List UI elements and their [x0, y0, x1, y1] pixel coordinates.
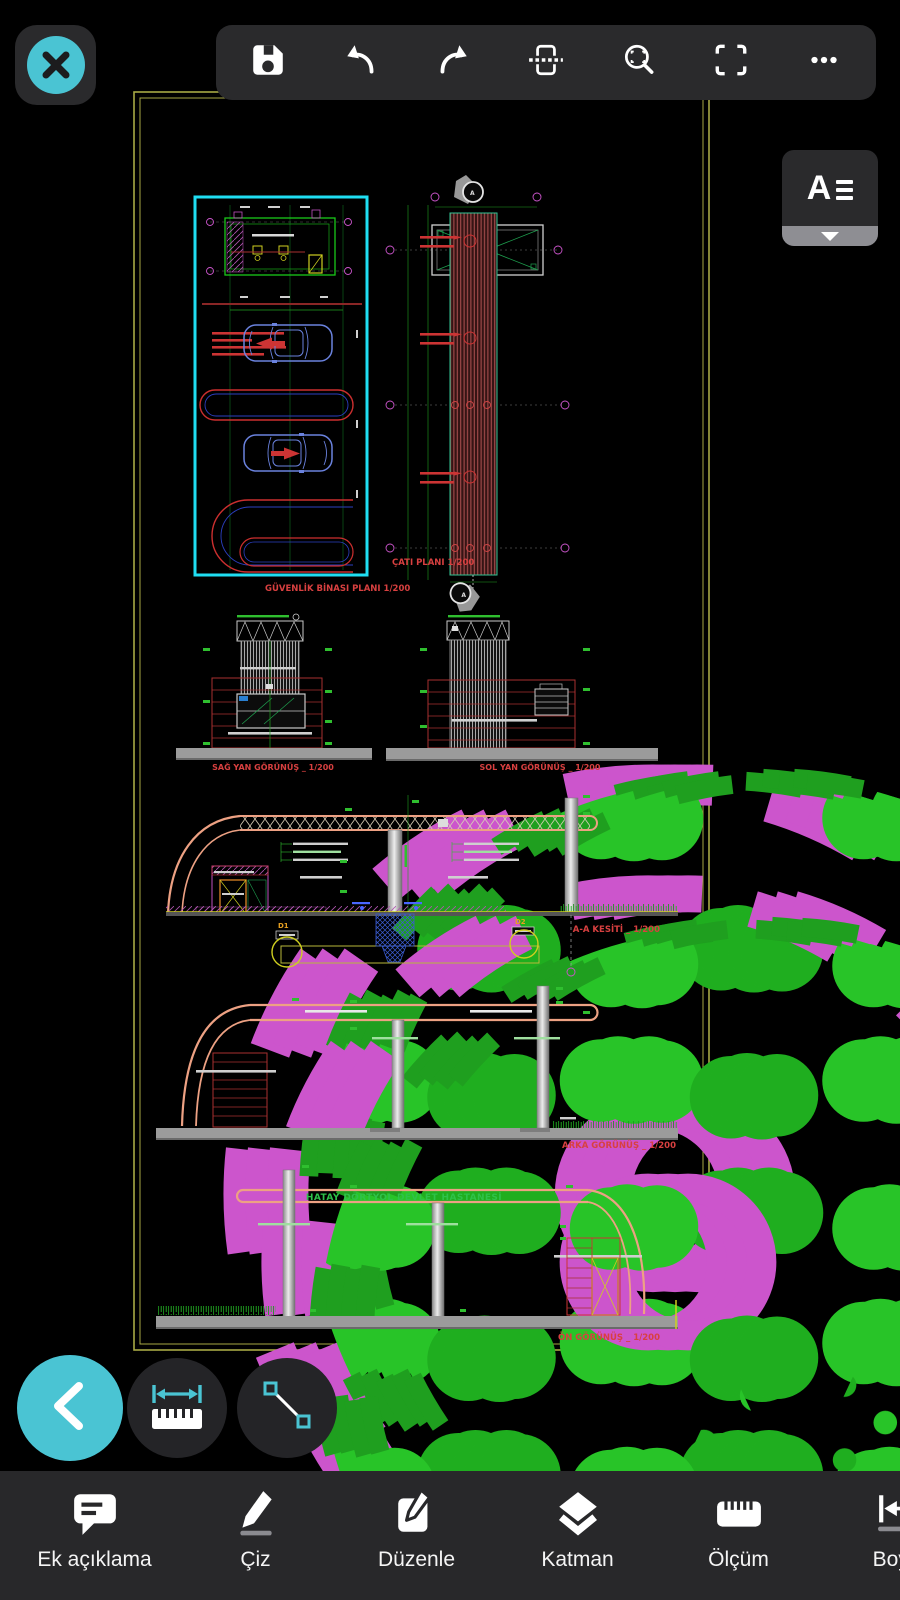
undo-button[interactable]: [329, 31, 393, 95]
security-plan-title: GÜVENLİK BİNASI PLANI 1/200: [265, 583, 410, 594]
section-aa-title: A-A KESİTİ _ 1/200: [573, 924, 660, 935]
text-style-icon: A: [782, 150, 878, 226]
measure-ruler-icon: [146, 1375, 208, 1442]
hospital-sign-text: HATAY DÖRTYOL DEVLET HASTANESİ: [306, 1192, 502, 1203]
back-chevron-icon: [17, 1353, 123, 1464]
back-button[interactable]: [17, 1355, 123, 1461]
right-side-elevation: SAĞ YAN GÖRÜNÜŞ _ 1/200: [176, 614, 372, 772]
left-side-title: SOL YAN GÖRÜNÜŞ _ 1/200: [480, 762, 601, 772]
letter-a: A: [807, 171, 832, 205]
layers-icon: [554, 1487, 602, 1539]
close-icon: [27, 36, 85, 94]
tab-label: Ek açıklama: [37, 1548, 151, 1572]
fullscreen-icon: [712, 41, 750, 84]
dimension-icon: [876, 1487, 900, 1539]
zoom-extents-icon: [620, 41, 658, 84]
svg-text:A: A: [470, 190, 475, 197]
trim-icon: [527, 41, 565, 84]
section-marker-bottom: A: [444, 578, 483, 617]
more-icon: [805, 41, 843, 84]
text-style-button[interactable]: A: [782, 150, 878, 246]
ruler-icon: [715, 1487, 763, 1539]
svg-text:D2: D2: [515, 918, 526, 926]
redo-button[interactable]: [421, 31, 485, 95]
tab-label: Ölçüm: [708, 1548, 769, 1572]
svg-text:D1: D1: [278, 922, 289, 930]
rear-view-title: ARKA GÖRÜNÜŞ _ 1/200: [562, 1140, 676, 1151]
roof-plan-view: A A ÇATI PLANI 1/200: [386, 175, 569, 617]
tab-edit[interactable]: Düzenle: [336, 1471, 497, 1572]
tab-label: Düzenle: [378, 1548, 455, 1572]
more-button[interactable]: [792, 31, 856, 95]
edit-icon: [393, 1487, 441, 1539]
tab-annotation[interactable]: Ek açıklama: [14, 1471, 175, 1572]
save-button[interactable]: [236, 31, 300, 95]
floor-plan: [207, 206, 352, 275]
annotation-icon: [71, 1487, 119, 1539]
cad-canvas[interactable]: GÜVENLİK BİNASI PLANI 1/200: [0, 0, 900, 1600]
text-style-collapse-handle[interactable]: [782, 226, 878, 246]
chevron-down-icon: [821, 232, 839, 241]
roof-plan-title: ÇATI PLANI 1/200: [392, 558, 474, 568]
trim-extend-button[interactable]: [514, 31, 578, 95]
stair-block: [196, 1053, 276, 1127]
measure-tool-button[interactable]: [127, 1358, 227, 1458]
tab-measure[interactable]: Ölçüm: [658, 1471, 819, 1572]
text-lines-icon: [836, 180, 853, 200]
line-segment-icon: [256, 1375, 318, 1442]
car-plan-1: [244, 323, 332, 363]
tab-layers[interactable]: Katman: [497, 1471, 658, 1572]
close-button[interactable]: [15, 25, 96, 105]
section-marker-top: A: [454, 175, 483, 204]
bottom-toolbar: Ek açıklama Çiz Düzenle Katman: [0, 1471, 900, 1600]
save-icon: [249, 41, 287, 84]
left-side-elevation: SOL YAN GÖRÜNÜŞ _ 1/200: [386, 615, 658, 772]
front-view-title: ÖN GÖRÜNÜŞ _ 1/200: [558, 1332, 660, 1343]
tab-dimension[interactable]: Boyut: [819, 1471, 900, 1572]
pencil-icon: [232, 1487, 280, 1539]
fullscreen-button[interactable]: [699, 31, 763, 95]
right-side-title: SAĞ YAN GÖRÜNÜŞ _ 1/200: [212, 761, 334, 772]
tab-label: Çiz: [240, 1548, 270, 1572]
svg-text:A: A: [461, 592, 466, 599]
top-toolbar: [216, 25, 876, 100]
tab-label: Katman: [541, 1548, 613, 1572]
redo-icon: [434, 41, 472, 84]
undo-icon: [342, 41, 380, 84]
tab-draw[interactable]: Çiz: [175, 1471, 336, 1572]
zoom-extents-button[interactable]: [607, 31, 671, 95]
tab-label: Boyut: [873, 1548, 900, 1572]
polyline-tool-button[interactable]: [237, 1358, 337, 1458]
